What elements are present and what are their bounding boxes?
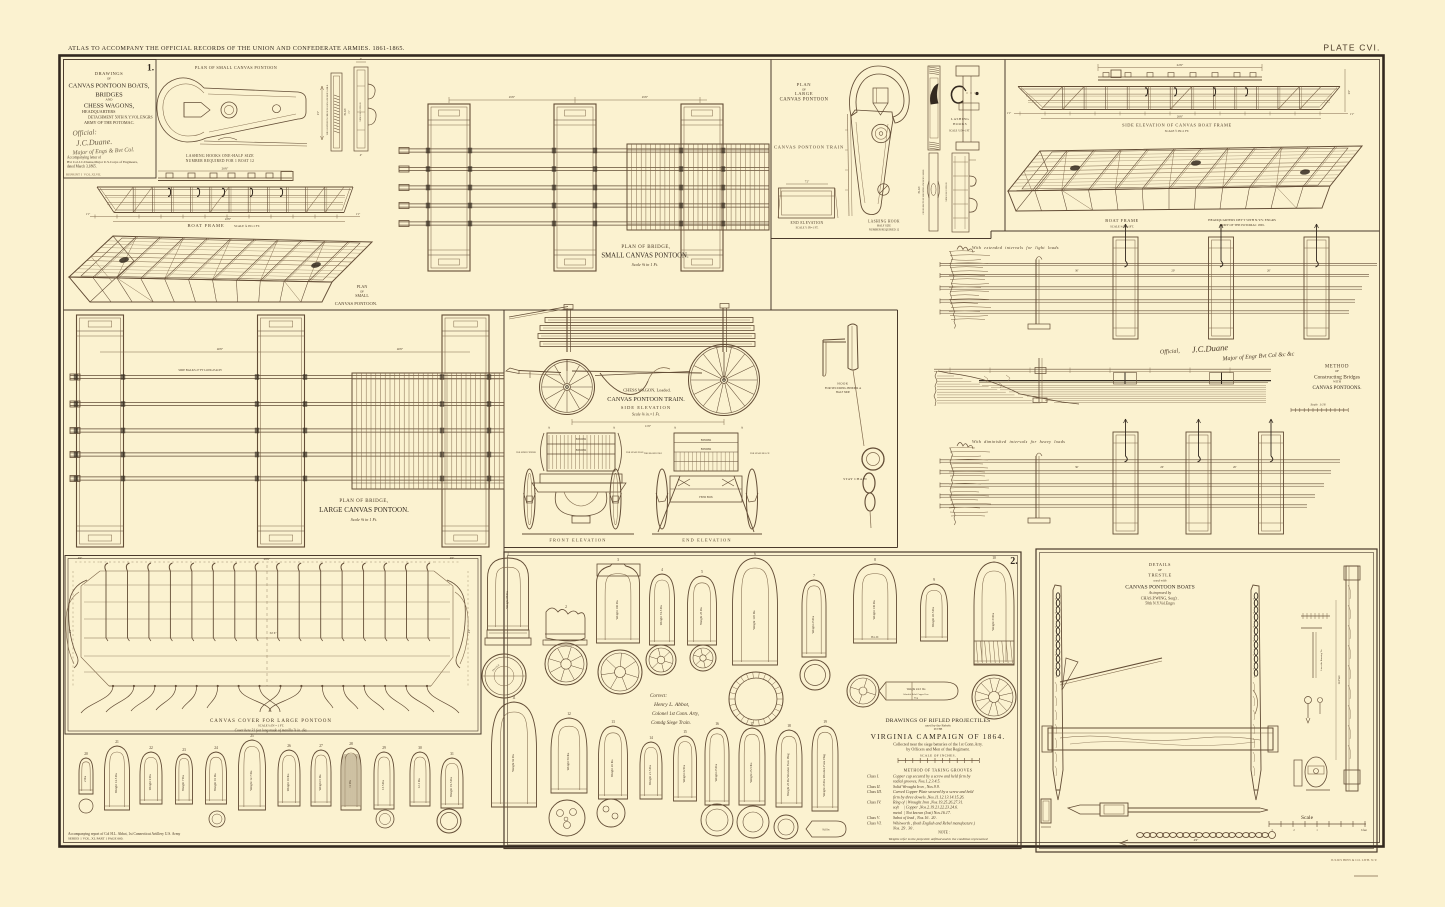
svg-text:45'6″: 45'6″ xyxy=(642,95,649,99)
svg-text:Weight 25 lbs: Weight 25 lbs xyxy=(699,606,703,624)
svg-text:CROSS SECTION SHOWING ANCHOR C: CROSS SECTION SHOWING ANCHOR CABLE xyxy=(922,169,925,215)
svg-text:CANVAS PONTOON BOATS: CANVAS PONTOON BOATS xyxy=(1125,585,1194,591)
svg-text:25: 25 xyxy=(250,734,254,738)
svg-text:13.5 lbs: 13.5 lbs xyxy=(381,779,385,790)
svg-text:HEADQUARTERS DET'T 50TH N.Y.V.: HEADQUARTERS DET'T 50TH N.Y.V. ENGRS xyxy=(1208,218,1276,222)
svg-text:2'2″: 2'2″ xyxy=(349,110,351,114)
svg-text:END ELEVATION: END ELEVATION xyxy=(682,538,732,543)
svg-text:LASHING HOOK: LASHING HOOK xyxy=(868,220,900,224)
svg-text:HALF SIZE: HALF SIZE xyxy=(877,225,891,228)
svg-text:Weight 33 lbs: Weight 33 lbs xyxy=(991,612,995,630)
svg-text:OF: OF xyxy=(1158,568,1162,572)
svg-text:27: 27 xyxy=(319,744,323,748)
svg-text:28'6″: 28'6″ xyxy=(264,557,271,561)
svg-text:3: 3 xyxy=(617,558,619,562)
svg-text:PLAN: PLAN xyxy=(357,284,368,289)
svg-text:FEED BOX: FEED BOX xyxy=(699,496,713,499)
svg-text:Weight 145 lbs: Weight 145 lbs xyxy=(752,610,756,630)
svg-text:Official,: Official, xyxy=(1160,347,1181,355)
svg-text:6: 6 xyxy=(754,552,756,556)
svg-text:BOAT FRAME: BOAT FRAME xyxy=(188,223,225,228)
svg-text:PLAN: PLAN xyxy=(344,108,347,115)
svg-text:17: 17 xyxy=(750,722,754,726)
svg-text:FRONT ELEVATION: FRONT ELEVATION xyxy=(549,538,606,543)
svg-text:Weight 25 lbs: Weight 25 lbs xyxy=(714,763,718,781)
svg-text:LARGE: LARGE xyxy=(795,91,813,96)
svg-text:SCALE ¾ IN=1 FT.: SCALE ¾ IN=1 FT. xyxy=(234,224,260,228)
svg-text:30': 30' xyxy=(1075,269,1079,273)
svg-text:6 feet: 6 feet xyxy=(1361,829,1367,832)
svg-text:PLAN OF SMALL CANVAS PONTOON: PLAN OF SMALL CANVAS PONTOON xyxy=(195,65,277,70)
svg-text:Accompanying letter of: Accompanying letter of xyxy=(67,156,102,160)
svg-text:PLAN: PLAN xyxy=(918,186,921,193)
svg-text:Class III.: Class III. xyxy=(867,789,882,794)
svg-text:HOOKS: HOOKS xyxy=(953,122,967,126)
svg-text:29: 29 xyxy=(382,746,386,750)
svg-text:30': 30' xyxy=(1075,465,1079,469)
svg-text:22'6″: 22'6″ xyxy=(1177,63,1184,67)
svg-text:Class VI.: Class VI. xyxy=(867,820,882,825)
svg-text:Weight 50 lbs: Weight 50 lbs xyxy=(566,752,570,770)
svg-text:SMALL: SMALL xyxy=(355,293,369,298)
svg-text:1: 1 xyxy=(507,552,509,556)
svg-text:With diminished intervals f: With diminished intervals for heavy load… xyxy=(972,439,1065,444)
svg-text:HEADQUARTERS: HEADQUARTERS xyxy=(82,109,116,114)
svg-text:B.L.W.: B.L.W. xyxy=(871,636,879,639)
svg-text:3″: 3″ xyxy=(360,58,362,61)
svg-text:BINDER: BINDER xyxy=(576,438,587,441)
svg-text:SCALE ⅜ IN=1FT.: SCALE ⅜ IN=1FT. xyxy=(1110,225,1134,229)
svg-text:PLAN OF BRIDGE,: PLAN OF BRIDGE, xyxy=(339,499,388,504)
svg-text:14 Feet: 14 Feet xyxy=(1337,675,1341,684)
svg-text:Weight 25.5 lbs: Weight 25.5 lbs xyxy=(749,762,753,783)
svg-text:Weight 24.5 lbs: Weight 24.5 lbs xyxy=(907,687,927,691)
svg-text:9.6 lbs: 9.6 lbs xyxy=(823,829,830,832)
svg-text:Weight 32 lbs: Weight 32 lbs xyxy=(682,764,686,782)
svg-text:CANVAS PONTOONS.: CANVAS PONTOONS. xyxy=(1313,386,1362,391)
svg-text:LARGE CANVAS PONTOON.: LARGE CANVAS PONTOON. xyxy=(319,506,409,514)
svg-text:19: 19 xyxy=(823,720,827,724)
svg-text:2: 2 xyxy=(565,605,567,609)
svg-text:40'6″: 40'6″ xyxy=(397,347,404,351)
svg-text:CANVAS PONTOON TRAIN: CANVAS PONTOON TRAIN xyxy=(774,145,844,150)
svg-text:DETACHMENT 50TH N.Y.VOL.ENGRS: DETACHMENT 50TH N.Y.VOL.ENGRS xyxy=(88,116,153,120)
svg-text:34' 6″: 34' 6″ xyxy=(269,631,277,635)
svg-text:13: 13 xyxy=(611,720,615,724)
svg-text:4: 4 xyxy=(661,568,663,572)
svg-text:BINDER: BINDER xyxy=(701,448,712,451)
svg-text:26'6″: 26'6″ xyxy=(222,167,229,171)
svg-text:STAY CHAIN: STAY CHAIN xyxy=(843,477,867,481)
svg-text:PLAN: PLAN xyxy=(797,82,811,87)
svg-text:20': 20' xyxy=(1267,269,1271,273)
svg-text:Weight 46.5 lbs: Weight 46.5 lbs xyxy=(931,606,935,627)
svg-text:4'6″: 4'6″ xyxy=(1194,838,1200,842)
svg-text:8: 8 xyxy=(874,558,876,562)
svg-text:Weight 88 lbs: Weight 88 lbs xyxy=(505,590,509,608)
svg-text:12 lbs: 12 lbs xyxy=(348,779,352,787)
svg-text:28: 28 xyxy=(349,742,353,746)
svg-text:NUMBER REQUIRED 12: NUMBER REQUIRED 12 xyxy=(869,229,900,232)
svg-text:CANVAS PONTOON TRAIN.: CANVAS PONTOON TRAIN. xyxy=(607,396,685,403)
svg-text:TRESTLE: TRESTLE xyxy=(1148,573,1172,578)
svg-text:SCALE ½ IN=1 FT: SCALE ½ IN=1 FT xyxy=(949,130,970,133)
svg-text:SCALE OF INCHES.: SCALE OF INCHES. xyxy=(920,754,956,758)
svg-text:Scale ⅜ in 1 Ft.: Scale ⅜ in 1 Ft. xyxy=(351,517,378,522)
svg-text:Nos. 29 . 30 .: Nos. 29 . 30 . xyxy=(892,826,914,831)
svg-text:PLATE CVI.: PLATE CVI. xyxy=(1323,43,1380,53)
svg-text:BOAT FRAME: BOAT FRAME xyxy=(1105,218,1139,223)
svg-text:SIDE BALKS 27 FT LONG EACH: SIDE BALKS 27 FT LONG EACH xyxy=(178,368,222,372)
svg-text:ARMY OF THE POTOMAC 1865.: ARMY OF THE POTOMAC 1865. xyxy=(1219,223,1265,227)
svg-text:FOR BRAKE POLE: FOR BRAKE POLE xyxy=(644,452,663,455)
svg-text:SERIES 1 VOL. XL PART 1 PAGE 6: SERIES 1 VOL. XL PART 1 PAGE 660. xyxy=(68,837,123,841)
svg-text:Weight 10 lbs: Weight 10 lbs xyxy=(213,773,217,791)
svg-text:FOR SPARE POLE: FOR SPARE POLE xyxy=(626,451,644,454)
svg-text:CANVAS PONTOON BOATS,: CANVAS PONTOON BOATS, xyxy=(69,83,150,90)
svg-text:22'6″: 22'6″ xyxy=(225,217,232,221)
svg-text:12: 12 xyxy=(567,712,571,716)
svg-text:CANVAS PONTOON: CANVAS PONTOON xyxy=(780,98,829,103)
svg-text:VIRGINIA CAMPAIGN OF 1864.: VIRGINIA CAMPAIGN OF 1864. xyxy=(871,732,1006,741)
svg-text:FOR SPARE REACH: FOR SPARE REACH xyxy=(750,452,770,455)
svg-text:SCALE ½ IN=1 FT.: SCALE ½ IN=1 FT. xyxy=(796,227,819,230)
svg-text:Weight 100 lbs: Weight 100 lbs xyxy=(615,599,619,619)
svg-text:SCALE ½ IN=1 FT.: SCALE ½ IN=1 FT. xyxy=(1165,129,1190,133)
svg-text:22: 22 xyxy=(149,746,153,750)
svg-text:11'6″: 11'6″ xyxy=(645,424,652,428)
svg-text:DETAILS: DETAILS xyxy=(1149,562,1171,567)
svg-text:J.C.Duane.: J.C.Duane. xyxy=(76,137,113,148)
svg-text:40'6″: 40'6″ xyxy=(217,347,224,351)
svg-text:REPRINT I VOL.XLVII.: REPRINT I VOL.XLVII. xyxy=(66,173,101,177)
svg-text:OF: OF xyxy=(107,77,111,81)
svg-text:END ELEVATION: END ELEVATION xyxy=(791,221,824,225)
svg-text:20': 20' xyxy=(1233,465,1237,469)
svg-text:CANVAS PONTOON.: CANVAS PONTOON. xyxy=(335,301,377,306)
svg-text:LASHING: LASHING xyxy=(951,117,969,121)
svg-text:Weight 6 lbs: Weight 6 lbs xyxy=(318,774,322,791)
svg-text:26'6″: 26'6″ xyxy=(1177,115,1184,119)
svg-text:As improved by: As improved by xyxy=(1148,591,1172,595)
svg-text:Scale ⅜ in 1 Ft.: Scale ⅜ in 1 Ft. xyxy=(632,262,659,267)
svg-text:FOR SPIKE FENDER: FOR SPIKE FENDER xyxy=(516,452,536,454)
svg-text:7: 7 xyxy=(813,574,815,578)
svg-text:Correct:: Correct: xyxy=(650,694,667,699)
svg-text:WROUGHT IRON CHECK HOOKS ANCHO: WROUGHT IRON CHECK HOOKS ANCHOR CABLE xyxy=(326,84,329,135)
svg-text:20': 20' xyxy=(1160,465,1164,469)
svg-text:PLAN OF BRIDGE,: PLAN OF BRIDGE, xyxy=(621,245,670,250)
svg-text:Weight 14.5 lbs: Weight 14.5 lbs xyxy=(114,772,118,793)
svg-text:BINDER: BINDER xyxy=(701,439,712,442)
svg-text:Class I.: Class I. xyxy=(867,774,879,779)
svg-text:Weight 19.5 lbs: Weight 19.5 lbs xyxy=(449,776,453,797)
svg-text:31: 31 xyxy=(450,752,454,756)
svg-text:used by the Rebels: used by the Rebels xyxy=(925,724,951,728)
svg-text:Weight 7 lbs: Weight 7 lbs xyxy=(181,774,185,791)
svg-text:Cover here 31 feet long made o: Cover here 31 feet long made of manilla … xyxy=(235,729,308,733)
svg-text:23: 23 xyxy=(182,748,186,752)
svg-text:1.: 1. xyxy=(147,64,154,74)
svg-text:HALF SIDE: HALF SIDE xyxy=(836,391,851,394)
svg-text:20: 20 xyxy=(84,752,88,756)
svg-text:15: 15 xyxy=(683,730,687,734)
svg-text:Scale: Scale xyxy=(1301,815,1314,821)
svg-text:NUMBER REQUIRED FOR 1 BOAT 12: NUMBER REQUIRED FOR 1 BOAT 12 xyxy=(186,159,254,163)
svg-text:Weights refer to the projectil: Weights refer to the projectile unfilled… xyxy=(888,837,987,841)
svg-text:Scale ⅜ in.=1 Ft.: Scale ⅜ in.=1 Ft. xyxy=(632,412,660,417)
svg-text:DRAWINGS: DRAWINGS xyxy=(95,71,123,76)
svg-text:Weight 92 lbs: Weight 92 lbs xyxy=(511,753,515,771)
svg-text:HOOK: HOOK xyxy=(837,382,848,386)
svg-text:OF: OF xyxy=(1335,369,1339,373)
svg-text:Weight 25 lbs: Weight 25 lbs xyxy=(811,615,815,633)
svg-text:Weight 26 lbs Wooden Fuze Plug: Weight 26 lbs Wooden Fuze Plug xyxy=(786,753,790,796)
svg-text:With extended intervals for: With extended intervals for light loads xyxy=(972,245,1059,250)
svg-text:16: 16 xyxy=(715,722,719,726)
svg-text:21: 21 xyxy=(115,740,119,744)
svg-text:Weight 74.5 lbs: Weight 74.5 lbs xyxy=(659,604,663,625)
svg-text:SIDE ELEVATION: SIDE ELEVATION xyxy=(359,102,362,121)
svg-text:5: 5 xyxy=(701,570,703,574)
svg-text:ARMY OF THE POTOMAC.: ARMY OF THE POTOMAC. xyxy=(84,120,134,125)
svg-text:Weight 9 lbs: Weight 9 lbs xyxy=(148,773,152,790)
svg-text:24: 24 xyxy=(214,746,218,750)
svg-text:Comdg Siege Train.: Comdg Siege Train. xyxy=(651,721,691,726)
svg-text:2.: 2. xyxy=(1010,556,1018,567)
svg-text:Official:: Official: xyxy=(72,128,97,137)
svg-text:SIDE ELEVATION: SIDE ELEVATION xyxy=(945,182,948,201)
svg-text:BINDER: BINDER xyxy=(576,449,587,452)
svg-text:12.1 lbs: 12.1 lbs xyxy=(417,778,421,789)
svg-text:LASHING HOOKS ONE-HALF SIZE: LASHING HOOKS ONE-HALF SIZE xyxy=(186,154,254,158)
svg-text:SIDE ELEVATION OF CANVAS BOAT: SIDE ELEVATION OF CANVAS BOAT FRAME xyxy=(1122,123,1232,128)
svg-text:Colonel 1st Conn. Arty,: Colonel 1st Conn. Arty, xyxy=(652,712,699,717)
svg-text:IN THE: IN THE xyxy=(934,728,943,731)
svg-text:10: 10 xyxy=(992,556,996,560)
svg-text:20': 20' xyxy=(1171,269,1175,273)
svg-text:by Officers and Men of that Re: by Officers and Men of that Regiment. xyxy=(906,747,969,752)
svg-text:Scale 1/16: Scale 1/16 xyxy=(1310,403,1325,407)
svg-text:14: 14 xyxy=(649,736,653,740)
svg-text:2 lbs: 2 lbs xyxy=(83,775,87,782)
svg-text:50th N.Y.Vol.Engrs: 50th N.Y.Vol.Engrs xyxy=(1145,602,1175,606)
svg-text:9: 9 xyxy=(933,578,935,582)
svg-text:JULIUS BIEN & CO. LITH. N.Y.: JULIUS BIEN & CO. LITH. N.Y. xyxy=(1331,858,1378,862)
svg-text:30: 30 xyxy=(418,746,422,750)
svg-text:45'6″: 45'6″ xyxy=(509,95,516,99)
svg-text:Lines the Running Tie: Lines the Running Tie xyxy=(1320,649,1323,670)
svg-text:AND: AND xyxy=(106,98,114,102)
svg-text:SCALE ¼ IN = 1 FT.: SCALE ¼ IN = 1 FT. xyxy=(258,724,284,728)
svg-text:WITH: WITH xyxy=(1333,380,1342,384)
svg-text:18: 18 xyxy=(787,724,791,728)
svg-text:used with: used with xyxy=(1154,579,1167,583)
svg-text:METHOD OF TAKING GROOVES: METHOD OF TAKING GROOVES xyxy=(904,768,973,773)
svg-text:Weight 10 lbs: Weight 10 lbs xyxy=(286,773,290,791)
svg-text:Schenkle Rebel Copper Fuze: Schenkle Rebel Copper Fuze xyxy=(903,694,928,696)
svg-text:ATLAS TO ACCOMPANY THE OFFICIA: ATLAS TO ACCOMPANY THE OFFICIAL RECORDS … xyxy=(68,45,405,52)
svg-text:Weight 21.5 lbs: Weight 21.5 lbs xyxy=(648,764,652,785)
svg-text:26: 26 xyxy=(287,744,291,748)
svg-text:11: 11 xyxy=(512,696,516,700)
svg-text:2'2″: 2'2″ xyxy=(317,111,320,115)
svg-text:Weight 12.7 lbs: Weight 12.7 lbs xyxy=(249,770,253,791)
svg-text:SMALL CANVAS PONTOON.: SMALL CANVAS PONTOON. xyxy=(601,253,689,260)
svg-text:Weight 130 lbs: Weight 130 lbs xyxy=(872,599,876,619)
svg-text:Weight 26 lbs Wooden Fuze Plug: Weight 26 lbs Wooden Fuze Plug xyxy=(822,754,826,797)
svg-text:NOTE :: NOTE : xyxy=(938,831,949,835)
svg-text:Class IV.: Class IV. xyxy=(867,800,881,805)
svg-text:FOR SECURING BINDER A: FOR SECURING BINDER A xyxy=(825,386,862,390)
svg-text:Weight 20 lbs: Weight 20 lbs xyxy=(610,759,614,777)
svg-text:Henry L. Abbot,: Henry L. Abbot, xyxy=(653,702,690,708)
svg-text:SIDE ELEVATION: SIDE ELEVATION xyxy=(621,405,671,410)
